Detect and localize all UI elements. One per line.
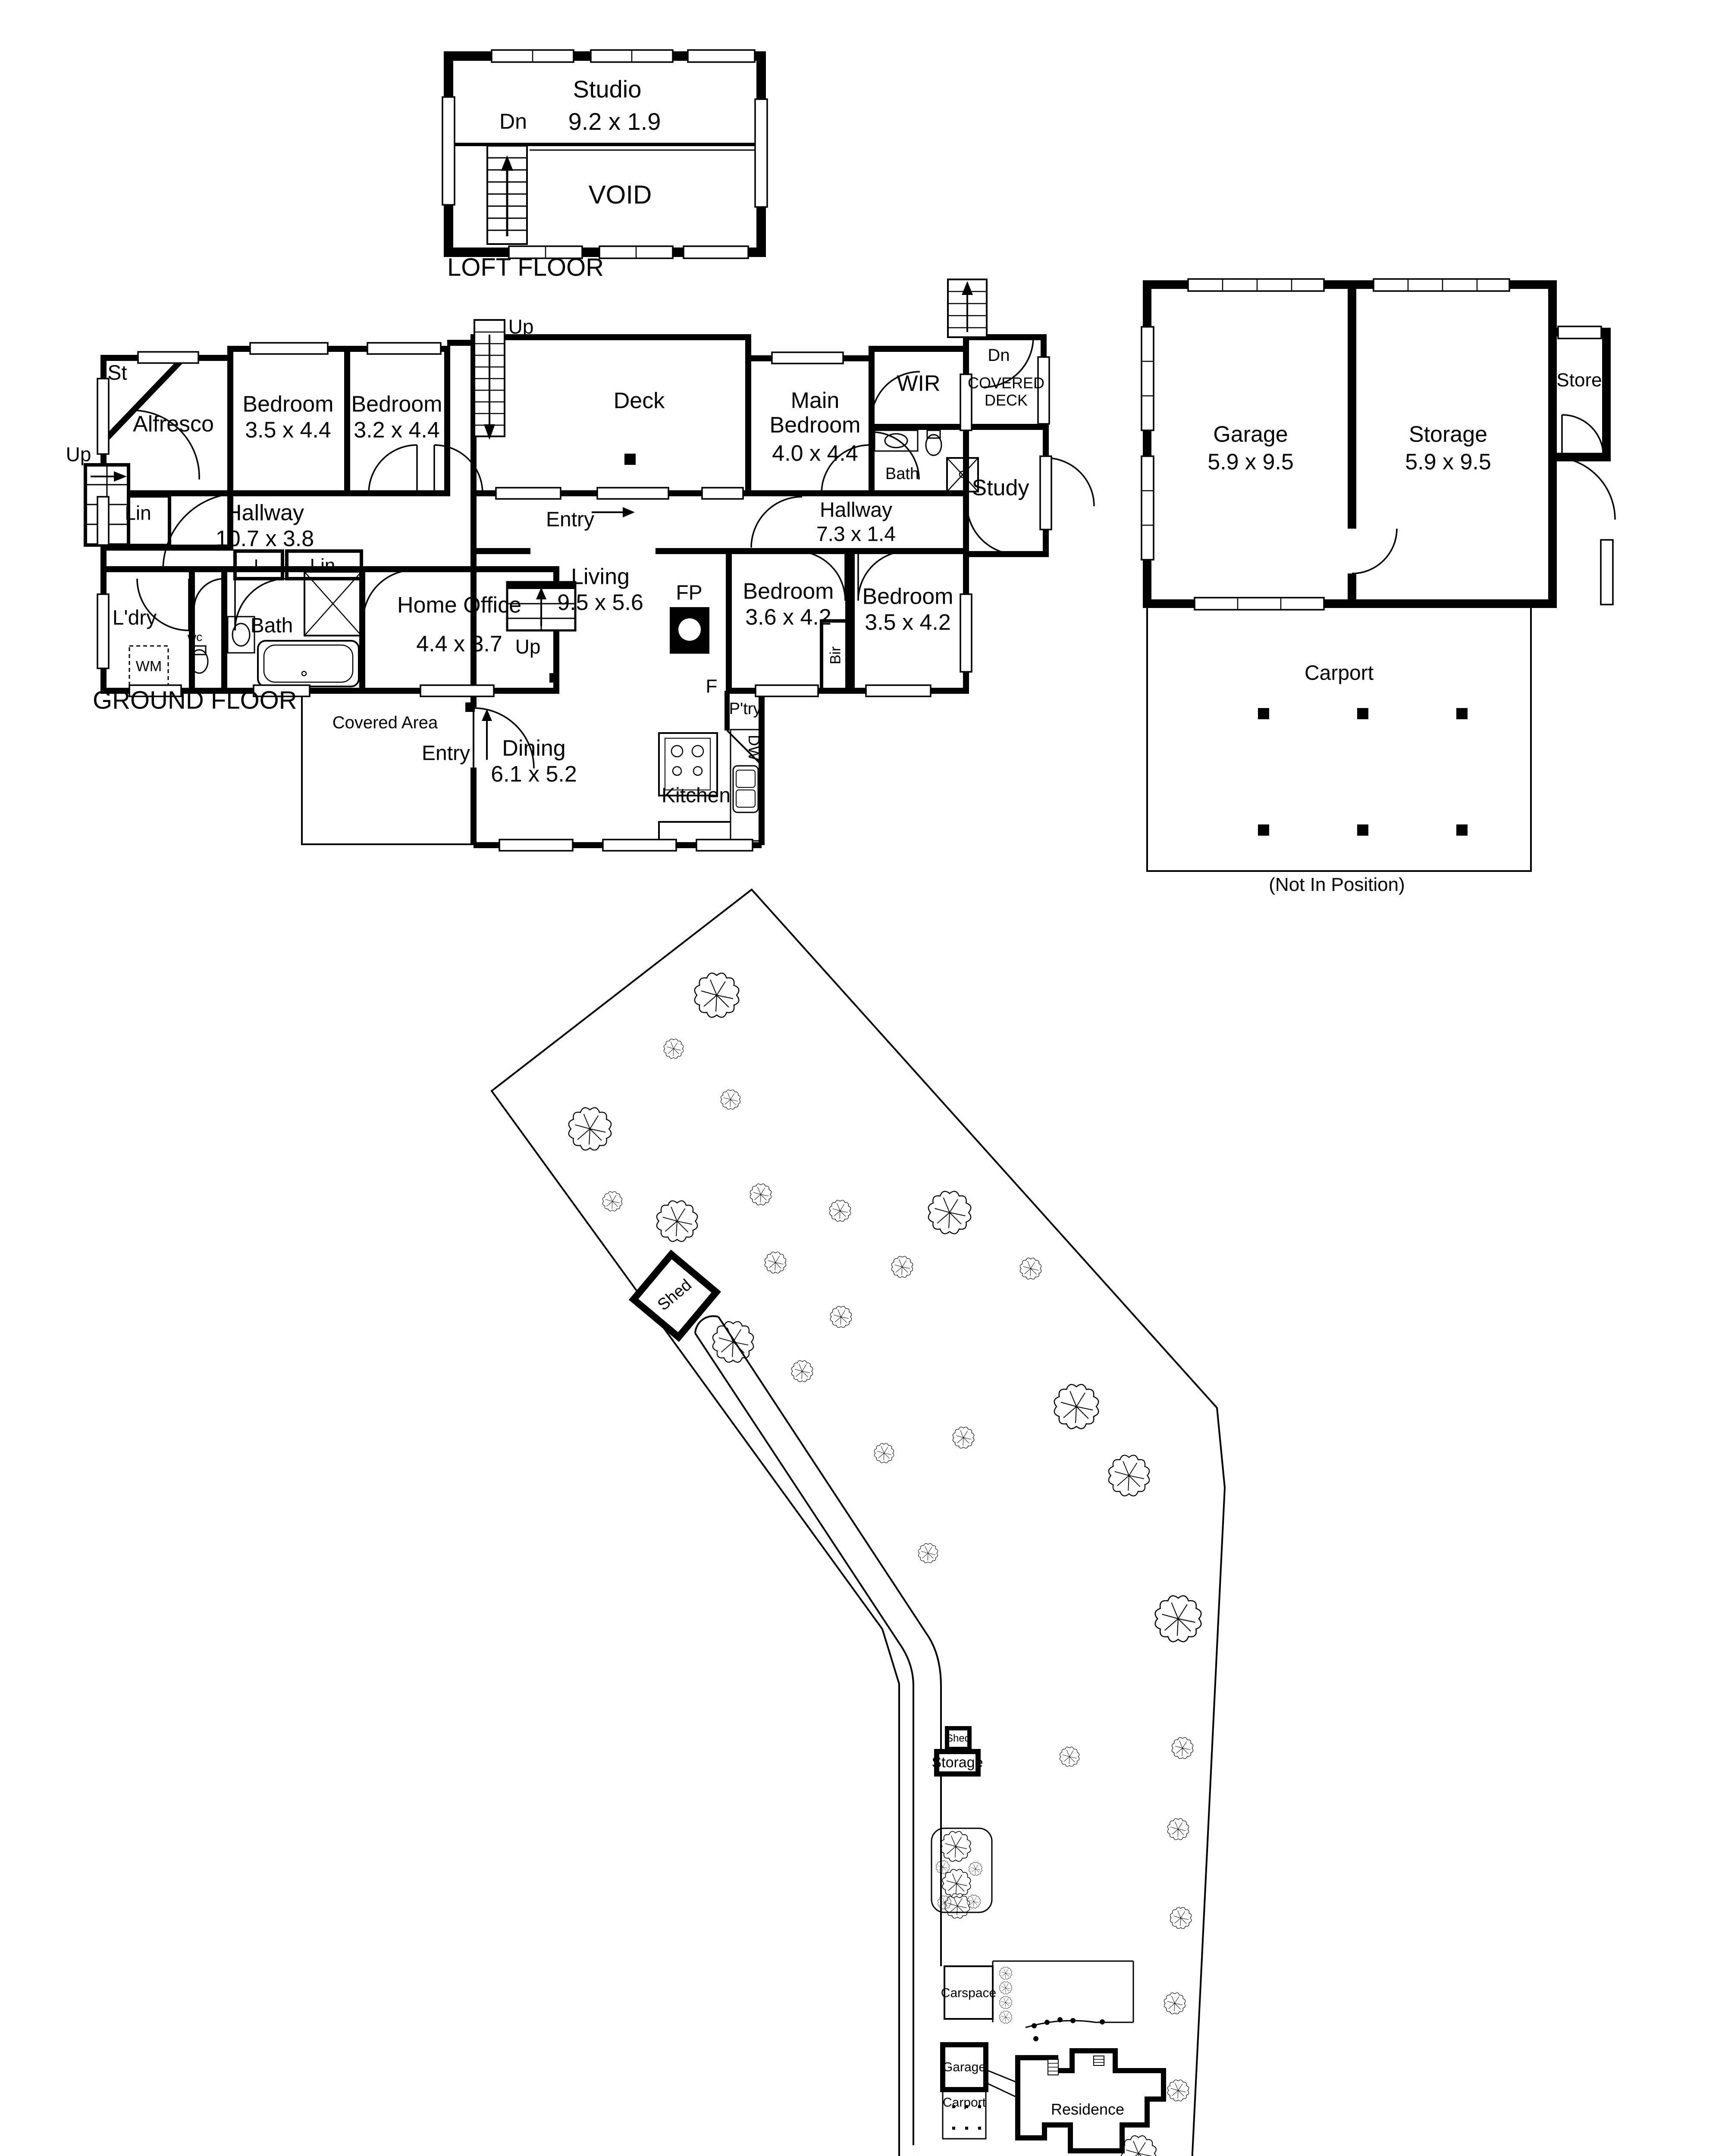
room-dims-main-bedroom: 4.0 x 4.4 — [772, 441, 858, 466]
room-label-bedroom3: Bedroom — [743, 579, 834, 604]
tree-icon — [953, 1427, 974, 1448]
room-label-kitchen: Kitchen — [662, 785, 731, 808]
tree-icon — [713, 1322, 753, 1362]
stair-label-dn-loft: Dn — [499, 110, 527, 134]
room-label-garage: Garage — [1213, 422, 1288, 447]
room-label-bedroom2: Bedroom — [351, 392, 442, 417]
closet-label-lin-hall: Lin — [125, 502, 151, 524]
closet-label-l: L — [254, 556, 263, 575]
tree-icon — [1121, 2136, 1156, 2156]
tree-icon — [1054, 1385, 1098, 1429]
room-dims-hallway1: 10.7 x 3.8 — [216, 526, 314, 551]
room-label-st: St — [107, 362, 127, 385]
room-label-bedroom1: Bedroom — [243, 392, 334, 417]
tree-icon — [1109, 1455, 1149, 1496]
tree-icon — [1000, 2011, 1012, 2024]
room-dims-studio: 9.2 x 1.9 — [568, 108, 661, 135]
tree-icon — [695, 973, 739, 1017]
room-label-deck: Deck — [614, 389, 665, 413]
plan-geometry — [0, 0, 1725, 2156]
tree-icon — [829, 1200, 850, 1221]
tree-icon — [602, 1191, 622, 1211]
tree-icon — [1000, 1996, 1012, 2009]
room-label-wir: WIR — [897, 371, 940, 396]
tree-icon — [942, 1869, 971, 1898]
tree-icon — [891, 1256, 913, 1277]
room-label-alfresco: Alfresco — [133, 412, 214, 436]
tree-icon — [874, 1443, 894, 1463]
room-label-wc: wc — [188, 631, 202, 644]
tree-icon — [938, 1896, 951, 1909]
site-label-carport: Carport — [943, 2096, 986, 2110]
tree-icon — [1020, 1258, 1041, 1279]
stair-label-up-deck: Up — [508, 316, 534, 338]
room-dims-hallway2: 7.3 x 1.4 — [816, 523, 896, 546]
room-dims-bedroom2: 3.2 x 4.4 — [354, 418, 439, 442]
fireplace-label: FP — [676, 582, 702, 605]
tree-icon — [1000, 1967, 1012, 1980]
tree-icon — [1060, 1747, 1079, 1766]
floor-title-ground: GROUND FLOOR — [93, 686, 297, 715]
tree-icon — [1000, 1982, 1012, 1994]
tree-icon — [928, 1191, 971, 1234]
room-label-hallway1: Hallway — [226, 501, 304, 525]
site-trees — [569, 973, 1201, 2156]
tree-icon — [1172, 1737, 1193, 1758]
room-label-bedroom4: Bedroom — [862, 584, 953, 609]
site-label-shed-lower: Shed — [946, 1733, 970, 1744]
site-label-storage: Storage — [931, 1755, 983, 1771]
tree-icon — [1167, 1818, 1189, 1839]
room-dims-bedroom1: 3.5 x 4.4 — [245, 418, 331, 442]
pantry-label: P'try — [729, 700, 762, 718]
room-dims-dining: 6.1 x 5.2 — [491, 762, 577, 787]
tree-icon — [830, 1306, 851, 1327]
tree-icon — [1170, 1907, 1191, 1928]
outbuilding-walls — [1142, 279, 1615, 871]
room-label-dining: Dining — [502, 736, 565, 761]
tree-icon — [969, 1862, 982, 1876]
room-label-store: Store — [1556, 370, 1602, 391]
floor-title-loft: LOFT FLOOR — [447, 253, 604, 282]
tree-icon — [1167, 2080, 1189, 2101]
room-dims-living: 9.5 x 5.6 — [557, 590, 643, 615]
tree-icon — [941, 1831, 971, 1861]
fridge-label: F — [706, 676, 718, 697]
room-label-ldry: L'dry — [113, 607, 157, 630]
room-label-ensuite: Bath — [885, 465, 919, 483]
tree-icon — [664, 1039, 683, 1058]
entry-side-label: Entry — [546, 509, 594, 532]
tree-icon — [1164, 1993, 1185, 2014]
room-dims-storage: 5.9 x 9.5 — [1405, 450, 1491, 474]
room-dims-home-office: 4.4 x 3.7 — [416, 632, 502, 656]
tree-icon — [569, 1108, 611, 1150]
room-label-hallway2: Hallway — [820, 499, 892, 522]
room-dims-bedroom4: 3.5 x 4.2 — [865, 610, 950, 635]
robe-label-bir: Bir — [828, 646, 844, 664]
site-label-carspace: Carspace — [941, 1986, 996, 2000]
entry-front-label: Entry — [422, 743, 470, 765]
room-dims-bedroom3: 3.6 x 4.2 — [745, 605, 831, 630]
stair-label-up-living: Up — [515, 636, 541, 658]
tree-icon — [721, 1090, 740, 1109]
site-label-garage: Garage — [943, 2060, 986, 2075]
dishwasher-label: DW — [745, 735, 762, 761]
room-label-study: Study — [972, 476, 1029, 500]
tree-icon — [750, 1184, 771, 1205]
tree-icon — [918, 1543, 938, 1563]
tree-icon — [791, 1360, 812, 1382]
room-dims-garage: 5.9 x 9.5 — [1207, 450, 1293, 474]
room-label-studio: Studio — [573, 76, 642, 103]
room-label-bath: Bath — [251, 615, 293, 638]
room-label-void: VOID — [589, 181, 652, 209]
site-label-residence: Residence — [1051, 2101, 1124, 2118]
tree-icon — [936, 1861, 950, 1874]
area-label-covered-area: Covered Area — [332, 713, 438, 732]
tree-icon — [1155, 1596, 1201, 1642]
carport-note: (Not In Position) — [1269, 874, 1405, 895]
tree-icon — [765, 1252, 786, 1273]
floorplan-page: Studio 9.2 x 1.9 Dn VOID LOFT FLOOR St A… — [0, 0, 1725, 2156]
room-label-storage: Storage — [1409, 422, 1487, 447]
room-label-main-bedroom: Main Bedroom — [748, 389, 882, 438]
site-plan — [492, 890, 1225, 2156]
tree-icon — [657, 1201, 697, 1241]
stair-label-up-alfresco: Up — [66, 444, 91, 466]
carport-posts — [1258, 708, 1468, 836]
room-label-home-office: Home Office — [392, 593, 526, 617]
appliance-label-wm: WM — [136, 658, 162, 674]
stair-label-dn-deck: Dn — [988, 346, 1010, 365]
area-label-carport: Carport — [1305, 662, 1374, 685]
room-label-covered-deck: COVERED DECK — [952, 374, 1060, 408]
room-label-living: Living — [571, 564, 630, 589]
closet-label-lin2: Lin — [310, 555, 336, 576]
